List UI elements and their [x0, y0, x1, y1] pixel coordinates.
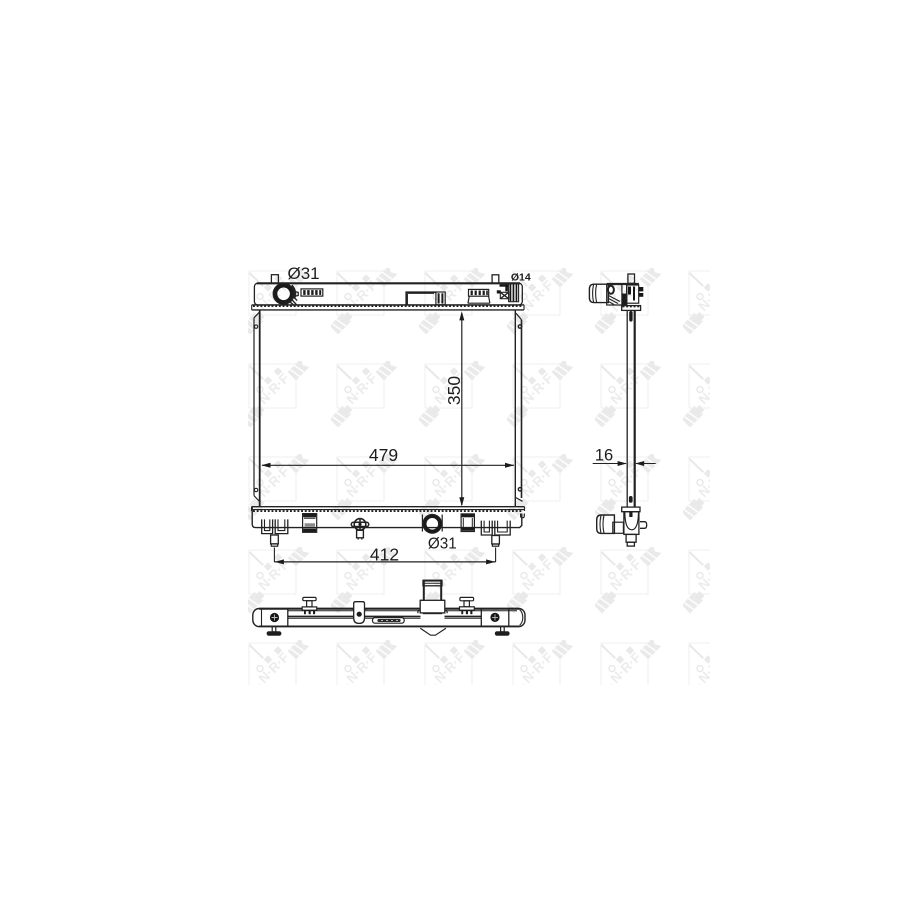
svg-text:Ø14: Ø14 — [511, 271, 531, 283]
svg-text:16: 16 — [595, 446, 613, 464]
svg-text:Ø31: Ø31 — [288, 264, 320, 283]
svg-text:412: 412 — [370, 544, 399, 564]
svg-text:Ø31: Ø31 — [428, 536, 457, 553]
svg-text:350: 350 — [444, 376, 464, 405]
svg-text:479: 479 — [369, 445, 398, 465]
